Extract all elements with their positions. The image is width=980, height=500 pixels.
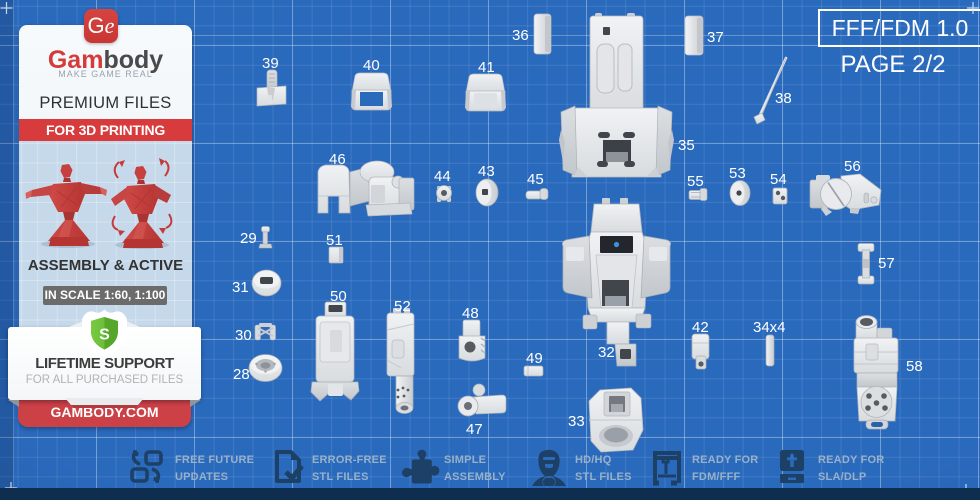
svg-text:S: S	[99, 327, 110, 344]
